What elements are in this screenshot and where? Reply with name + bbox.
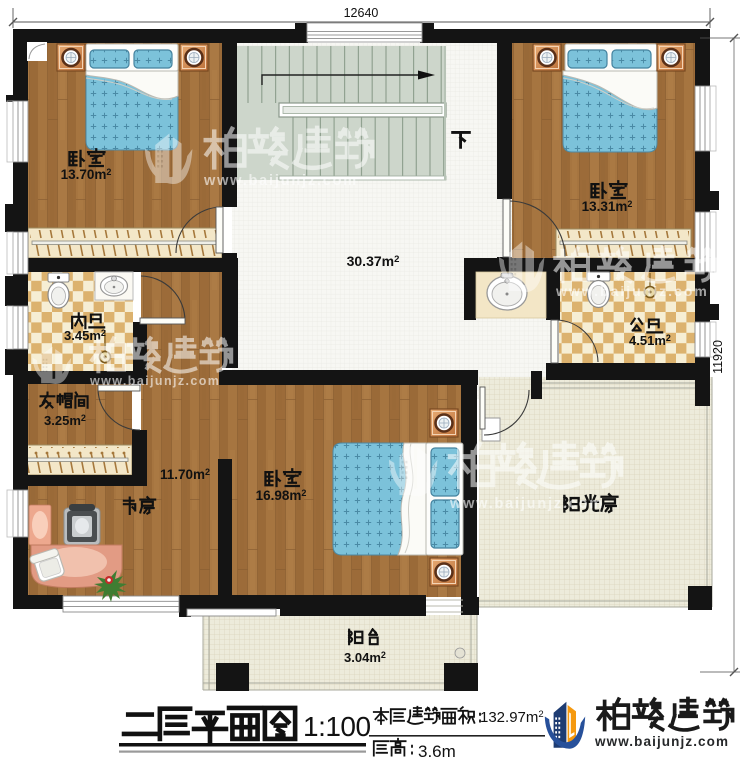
svg-text:www.baijunjz.com: www.baijunjz.com bbox=[89, 374, 220, 388]
svg-text:www.baijunjz.com: www.baijunjz.com bbox=[203, 173, 358, 189]
svg-text:www.baijunjz.com: www.baijunjz.com bbox=[449, 496, 604, 512]
svg-text:132.97m2: 132.97m2 bbox=[480, 709, 544, 726]
svg-text:11.70m2: 11.70m2 bbox=[160, 467, 210, 482]
svg-text:3.6m: 3.6m bbox=[418, 742, 456, 761]
svg-text:www.baijunjz.com: www.baijunjz.com bbox=[555, 283, 709, 299]
svg-text:30.37m2: 30.37m2 bbox=[347, 253, 400, 269]
svg-text:1:100: 1:100 bbox=[303, 711, 371, 742]
svg-text:11920: 11920 bbox=[711, 340, 725, 374]
svg-text:3.04m2: 3.04m2 bbox=[344, 650, 386, 665]
svg-text:3.25m2: 3.25m2 bbox=[44, 413, 86, 428]
svg-text:12640: 12640 bbox=[344, 6, 379, 20]
svg-text:13.31m2: 13.31m2 bbox=[582, 199, 633, 214]
svg-text:16.98m2: 16.98m2 bbox=[256, 488, 307, 503]
svg-text:4.51m2: 4.51m2 bbox=[629, 333, 671, 348]
svg-text:www.baijunjz.com: www.baijunjz.com bbox=[594, 734, 729, 749]
svg-text:13.70m2: 13.70m2 bbox=[61, 167, 112, 182]
